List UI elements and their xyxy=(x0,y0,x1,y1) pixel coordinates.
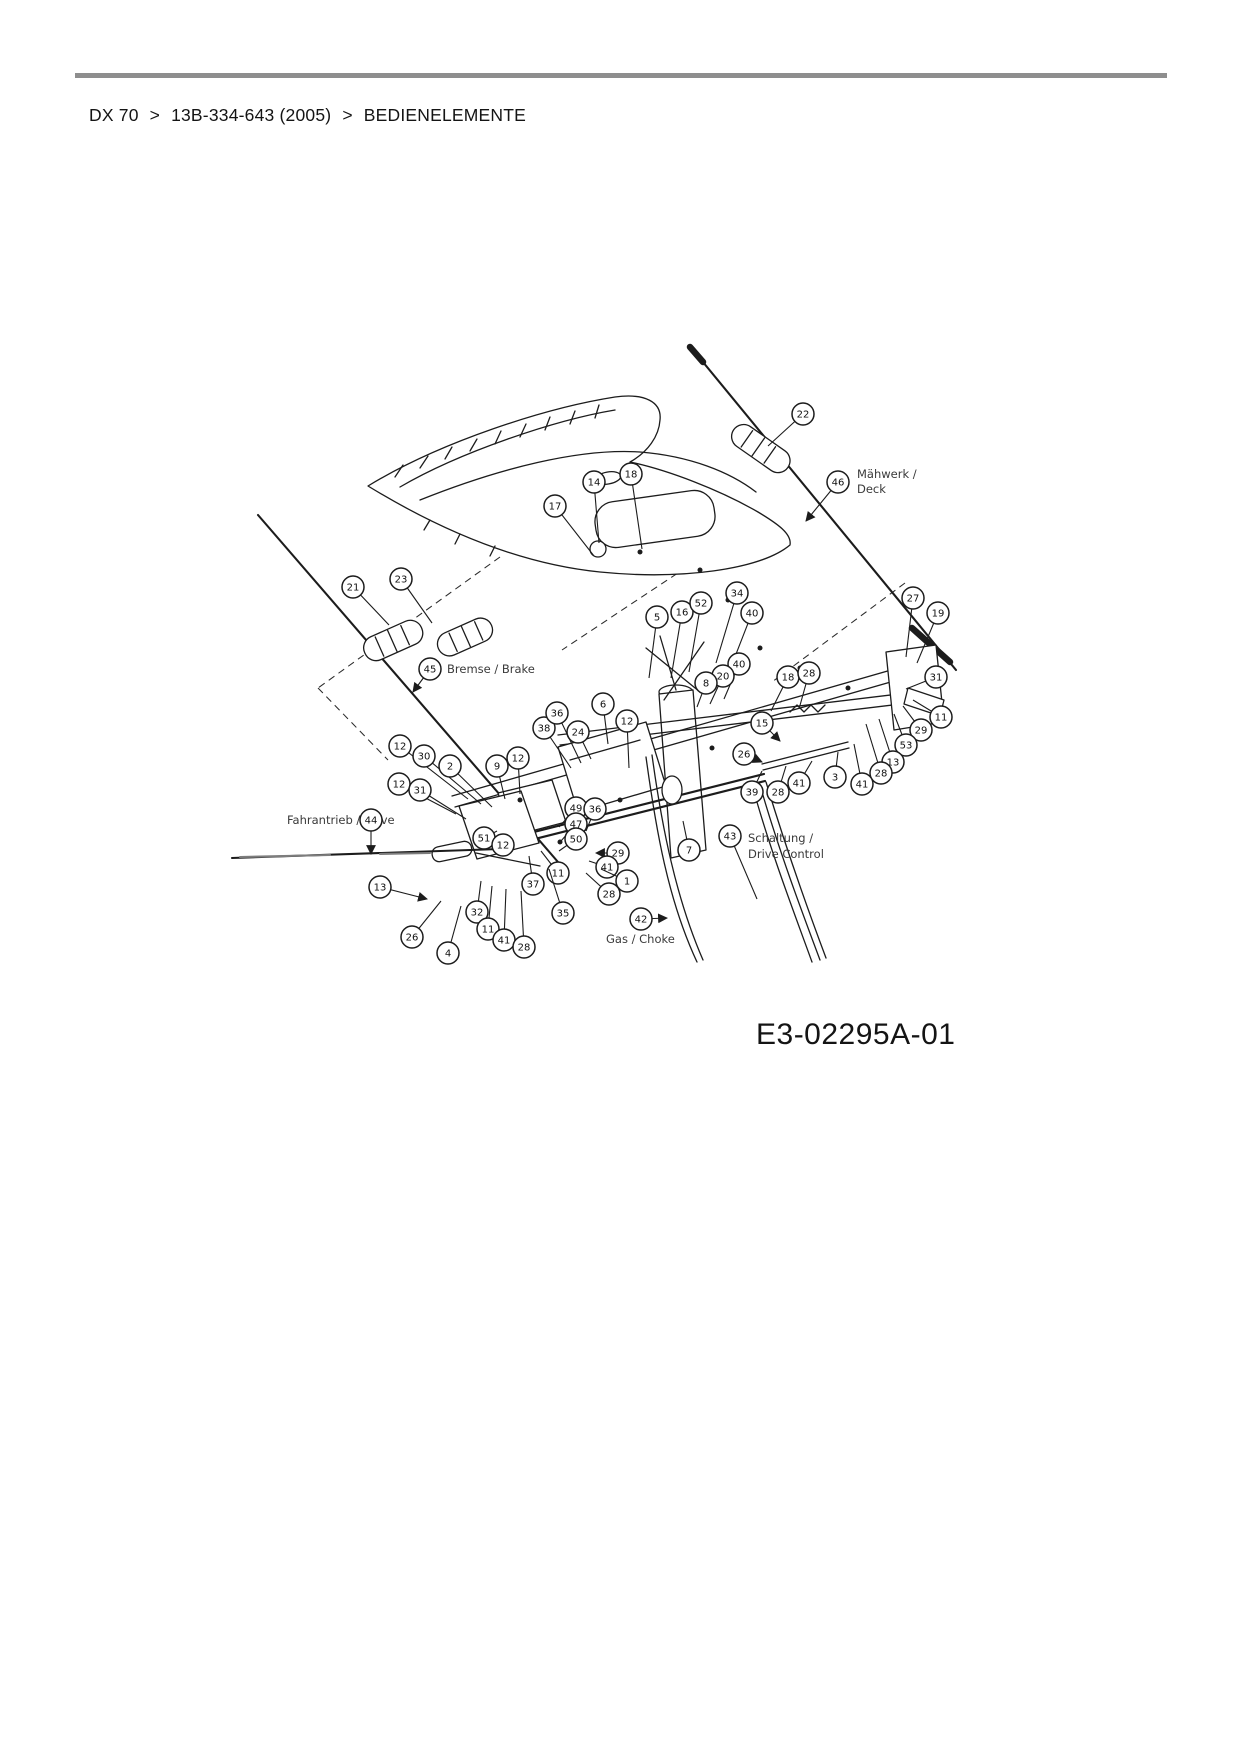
callout-number: 41 xyxy=(793,779,806,790)
callout-3: 3 xyxy=(824,752,846,788)
callout-52: 52 xyxy=(689,592,712,672)
callout-number: 46 xyxy=(832,478,845,489)
callout-15: 15 xyxy=(751,712,780,741)
callout-8: 8 xyxy=(695,672,717,707)
callout-number: 43 xyxy=(724,832,737,843)
callout-31: 31 xyxy=(409,779,466,819)
callout-number: 17 xyxy=(549,502,562,513)
callout-11: 11 xyxy=(541,851,569,884)
callout-number: 20 xyxy=(717,672,730,683)
callout-number: 15 xyxy=(756,719,769,730)
callout-number: 12 xyxy=(497,841,510,852)
callout-22: 22 xyxy=(768,403,814,446)
callout-number: 28 xyxy=(603,890,616,901)
callout-39: 39 xyxy=(741,771,763,803)
callout-number: 7 xyxy=(686,846,692,857)
callout-number: 28 xyxy=(803,669,816,680)
callout-number: 32 xyxy=(471,908,484,919)
callout-28: 28 xyxy=(798,662,820,709)
callout-21: 21 xyxy=(342,576,389,625)
callout-number: 51 xyxy=(478,834,491,845)
callout-12: 12 xyxy=(492,834,514,856)
callout-5: 5 xyxy=(646,606,668,678)
callout-number: 11 xyxy=(552,869,565,880)
callout-number: 40 xyxy=(733,660,746,671)
callout-41: 41 xyxy=(851,744,873,795)
callout-28: 28 xyxy=(513,891,535,958)
callout-number: 31 xyxy=(414,786,427,797)
callout-number: 16 xyxy=(676,608,689,619)
callout-number: 23 xyxy=(395,575,408,586)
callout-number: 42 xyxy=(635,915,648,926)
callout-number: 6 xyxy=(600,700,606,711)
callout-number: 8 xyxy=(703,679,709,690)
callout-28: 28 xyxy=(767,766,789,803)
callout-number: 26 xyxy=(406,933,419,944)
callout-number: 40 xyxy=(746,609,759,620)
callout-34: 34 xyxy=(716,582,748,663)
callout-number: 28 xyxy=(875,769,888,780)
callout-number: 53 xyxy=(900,741,913,752)
callout-number: 14 xyxy=(588,478,601,489)
callout-number: 29 xyxy=(915,726,928,737)
callout-38: 38 xyxy=(533,717,571,768)
callout-number: 34 xyxy=(731,589,744,600)
callout-number: 28 xyxy=(772,788,785,799)
callout-number: 26 xyxy=(738,750,751,761)
callout-number: 19 xyxy=(932,609,945,620)
callout-number: 13 xyxy=(374,883,387,894)
callout-number: 12 xyxy=(512,754,525,765)
drawing-number: E3-02295A-01 xyxy=(756,1018,955,1052)
callout-13: 13 xyxy=(369,876,427,899)
diagram-label: Schaltung / xyxy=(748,831,813,845)
callout-number: 12 xyxy=(394,742,407,753)
callout-number: 2 xyxy=(447,762,453,773)
callout-number: 31 xyxy=(930,673,943,684)
callout-number: 11 xyxy=(482,925,495,936)
callout-number: 44 xyxy=(365,816,378,827)
callout-number: 39 xyxy=(746,788,759,799)
diagram-label: Drive Control xyxy=(748,847,824,861)
callout-number: 36 xyxy=(589,805,602,816)
callout-number: 4 xyxy=(445,949,451,960)
exploded-parts-diagram: Mähwerk /DeckBremse / BrakeFahrantrieb /… xyxy=(0,0,1240,1754)
callout-number: 9 xyxy=(494,762,500,773)
callout-number: 50 xyxy=(570,835,583,846)
callout-number: 41 xyxy=(856,780,869,791)
callout-number: 35 xyxy=(557,909,570,920)
callout-number: 5 xyxy=(654,613,660,624)
diagram-label: Deck xyxy=(857,482,886,496)
callout-number: 11 xyxy=(935,713,948,724)
callout-number: 27 xyxy=(907,594,920,605)
callout-32: 32 xyxy=(466,881,488,923)
callout-number: 37 xyxy=(527,880,540,891)
callout-number: 1 xyxy=(624,877,630,888)
callout-number: 30 xyxy=(418,752,431,763)
callout-number: 3 xyxy=(832,773,838,784)
callout-number: 38 xyxy=(538,724,551,735)
callout-23: 23 xyxy=(390,568,432,623)
callout-26: 26 xyxy=(401,901,441,948)
callout-number: 24 xyxy=(572,728,585,739)
callout-41: 41 xyxy=(788,761,812,794)
diagram-label: Bremse / Brake xyxy=(447,662,535,676)
callout-18: 18 xyxy=(771,666,799,711)
callout-number: 52 xyxy=(695,599,708,610)
callout-26: 26 xyxy=(733,743,762,765)
callout-number: 28 xyxy=(518,943,531,954)
callout-number: 21 xyxy=(347,583,360,594)
callout-number: 45 xyxy=(424,665,437,676)
callout-number: 12 xyxy=(621,717,634,728)
diagram-label: Gas / Choke xyxy=(606,932,675,946)
callout-number: 36 xyxy=(551,709,564,720)
callout-2: 2 xyxy=(439,755,492,807)
callout-44: 44 xyxy=(360,809,382,854)
callout-number: 41 xyxy=(498,936,511,947)
catalog-page: { "breadcrumb": { "items": ["DX 70", "13… xyxy=(0,0,1240,1754)
callout-number: 18 xyxy=(782,673,795,684)
diagram-label: Mähwerk / xyxy=(857,467,917,481)
callout-number: 22 xyxy=(797,410,810,421)
callout-45: 45 xyxy=(413,658,441,692)
diagram-artwork xyxy=(232,347,956,962)
callout-number: 18 xyxy=(625,470,638,481)
callout-number: 12 xyxy=(393,780,406,791)
callout-4: 4 xyxy=(437,906,461,964)
callout-41: 41 xyxy=(493,889,515,951)
callout-42: 42 xyxy=(630,908,667,930)
callout-37: 37 xyxy=(522,856,544,895)
